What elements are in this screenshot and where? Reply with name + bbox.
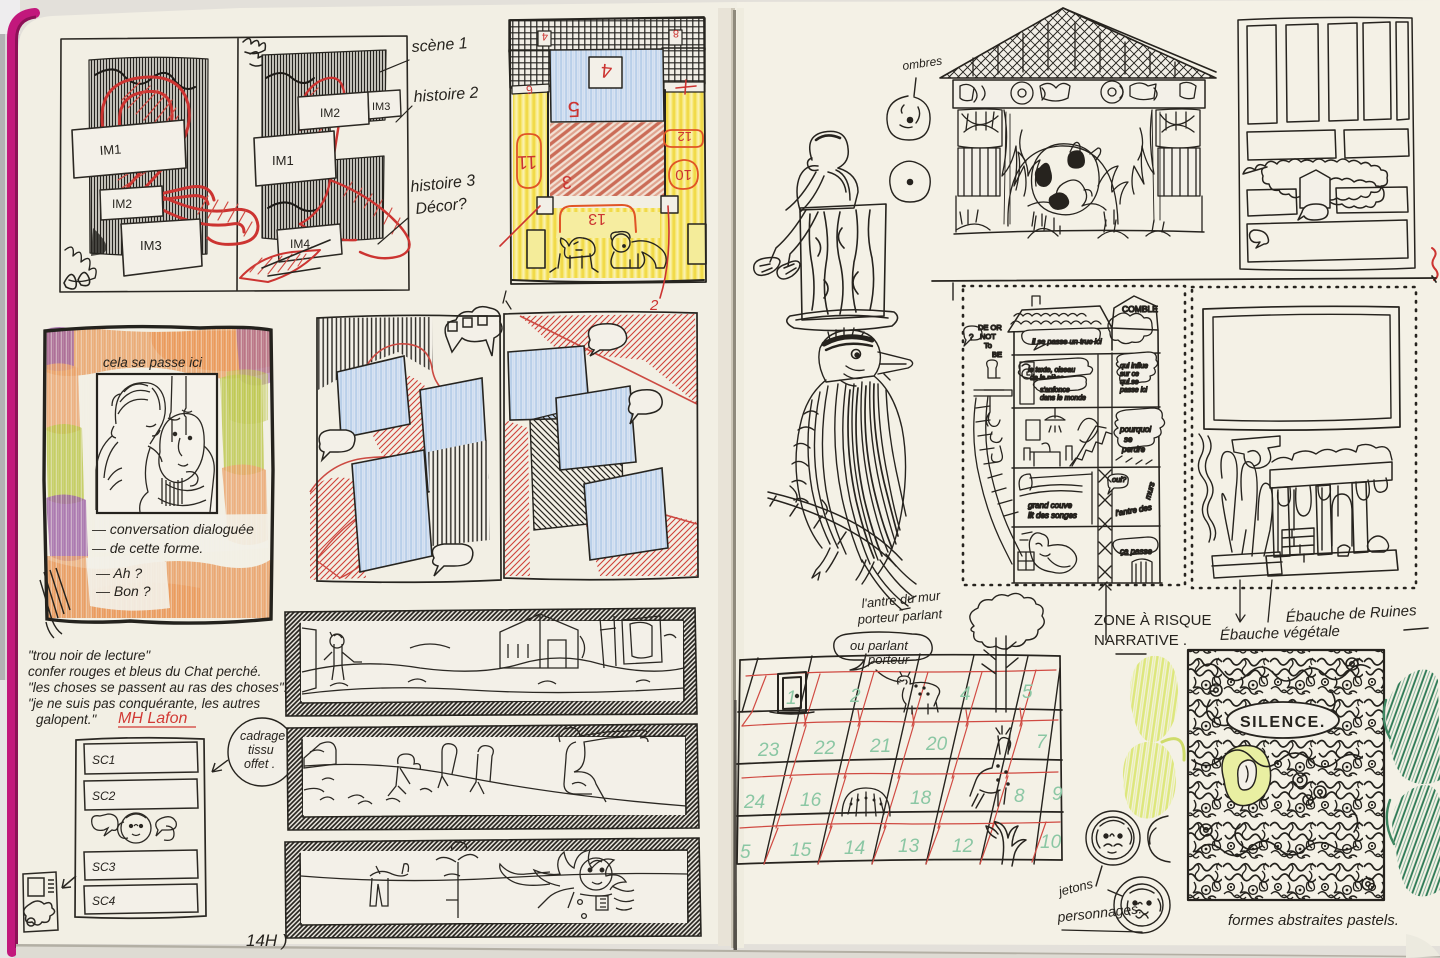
svg-text:ou parlant: ou parlant xyxy=(850,638,909,653)
svg-text:4: 4 xyxy=(600,59,613,82)
svg-text:8: 8 xyxy=(1014,786,1025,807)
svg-text:13: 13 xyxy=(898,836,920,857)
svg-text:dans le monde: dans le monde xyxy=(1040,395,1086,402)
svg-text:cadrage: cadrage xyxy=(240,729,285,743)
svg-text:SC2: SC2 xyxy=(92,789,116,803)
svg-text:14H ): 14H ) xyxy=(246,931,288,950)
svg-text:BE: BE xyxy=(992,350,1002,359)
svg-text:5: 5 xyxy=(567,97,580,122)
svg-text:24: 24 xyxy=(743,792,765,813)
svg-text:10: 10 xyxy=(1040,832,1062,853)
svg-text:15: 15 xyxy=(790,840,812,861)
svg-text:qui influe: qui influe xyxy=(1120,363,1148,370)
svg-text:"je ne suis pas conquérante, l: "je ne suis pas conquérante, les autres xyxy=(28,696,260,711)
svg-text:IM3: IM3 xyxy=(140,238,162,253)
svg-text:18: 18 xyxy=(910,788,932,809)
svg-text:16: 16 xyxy=(800,790,822,811)
svg-text:10: 10 xyxy=(675,166,692,183)
svg-text:3: 3 xyxy=(562,172,572,192)
svg-text:23: 23 xyxy=(757,740,780,761)
svg-text:passe ici: passe ici xyxy=(1119,387,1148,394)
svg-text:galopent.": galopent." xyxy=(36,712,98,727)
svg-text:s'enfonce: s'enfonce xyxy=(1040,387,1070,394)
svg-text:4: 4 xyxy=(542,30,548,42)
svg-text:MH Lafon: MH Lafon xyxy=(118,710,187,727)
svg-text:14: 14 xyxy=(844,838,865,859)
svg-text:21: 21 xyxy=(869,736,891,757)
svg-text:11: 11 xyxy=(517,151,537,173)
svg-text:SILENCE.: SILENCE. xyxy=(1240,714,1326,731)
svg-text:NOT: NOT xyxy=(980,332,996,341)
svg-text:lit des songes: lit des songes xyxy=(1028,511,1077,520)
svg-text:— conversation dialoguée: — conversation dialoguée xyxy=(91,521,254,537)
svg-text:qui se: qui se xyxy=(1120,379,1139,386)
svg-text:cela se passe ici: cela se passe ici xyxy=(103,355,203,370)
svg-text:COMBLE: COMBLE xyxy=(1122,304,1158,314)
svg-text:IM1: IM1 xyxy=(272,153,294,168)
svg-text:"les choses se passent au ras: "les choses se passent au ras des choses… xyxy=(28,680,287,695)
svg-text:12: 12 xyxy=(952,836,974,857)
svg-text:4: 4 xyxy=(960,684,971,705)
svg-text:formes abstraites pastels.: formes abstraites pastels. xyxy=(1228,912,1399,929)
svg-text:IM3: IM3 xyxy=(372,101,390,113)
svg-text:12: 12 xyxy=(678,129,692,144)
svg-text:— de cette forme.: — de cette forme. xyxy=(91,540,203,556)
svg-text:confer rouges et bleus du Chat: confer rouges et bleus du Chat perché. xyxy=(28,664,261,679)
svg-text:— Ah ?: — Ah ? xyxy=(95,565,142,581)
svg-text:oui?: oui? xyxy=(1112,475,1127,484)
svg-text:SC1: SC1 xyxy=(92,753,115,767)
svg-text:IM1: IM1 xyxy=(99,142,122,158)
svg-text:— Bon ?: — Bon ? xyxy=(95,583,151,599)
svg-text:sur ce: sur ce xyxy=(1120,371,1139,378)
svg-text:8: 8 xyxy=(673,27,679,39)
svg-text:IM2: IM2 xyxy=(320,106,340,120)
svg-text:offet .: offet . xyxy=(244,757,275,771)
svg-text:tissu: tissu xyxy=(248,743,274,757)
svg-text:ZONE À RISQUE: ZONE À RISQUE xyxy=(1094,612,1212,629)
svg-text:1: 1 xyxy=(786,688,797,709)
svg-text:22: 22 xyxy=(813,738,836,759)
svg-text:SC3: SC3 xyxy=(92,860,116,874)
svg-text:SC4: SC4 xyxy=(92,894,116,908)
svg-text:DE OR: DE OR xyxy=(978,323,1002,332)
svg-text:NARRATIVE .: NARRATIVE . xyxy=(1094,632,1187,649)
svg-text:9: 9 xyxy=(1052,784,1063,805)
svg-text:13: 13 xyxy=(588,210,606,227)
svg-text:IM2: IM2 xyxy=(112,197,132,211)
svg-text:5: 5 xyxy=(1022,682,1033,703)
svg-text:perdre: perdre xyxy=(1121,445,1146,454)
svg-text:To: To xyxy=(984,341,992,350)
svg-text:?: ? xyxy=(969,333,974,342)
svg-text:7: 7 xyxy=(1036,732,1048,753)
svg-text:le texte, oiseau: le texte, oiseau xyxy=(1028,367,1075,374)
svg-text:5: 5 xyxy=(740,842,751,863)
svg-text:20: 20 xyxy=(925,734,948,755)
svg-text:il se passe un truc ici: il se passe un truc ici xyxy=(1032,337,1102,346)
svg-text:pourquoi: pourquoi xyxy=(1119,425,1151,434)
svg-text:grand couve: grand couve xyxy=(1028,501,1073,510)
svg-text:ça passe: ça passe xyxy=(1120,547,1153,556)
svg-text:2: 2 xyxy=(849,686,861,707)
svg-text:se: se xyxy=(1124,435,1133,444)
svg-text:"trou noir de lecture": "trou noir de lecture" xyxy=(28,648,151,663)
